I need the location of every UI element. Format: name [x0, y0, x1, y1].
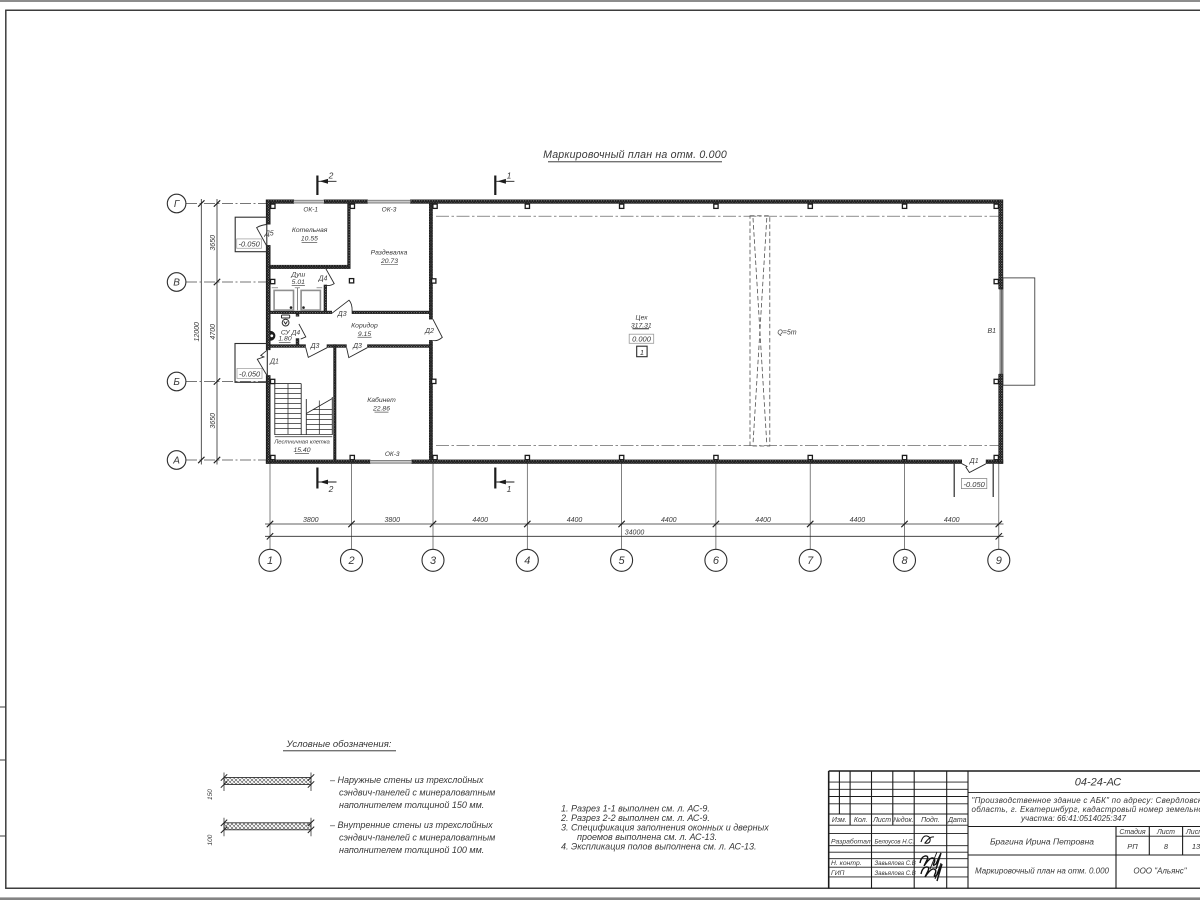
svg-text:4: 4 — [524, 555, 530, 567]
svg-text:Дата: Дата — [947, 817, 967, 824]
svg-text:Подп.: Подп. — [921, 816, 940, 824]
svg-text:317.31: 317.31 — [631, 322, 652, 329]
svg-text:3800: 3800 — [385, 517, 401, 524]
svg-text:-0.050: -0.050 — [239, 240, 261, 249]
svg-text:12000: 12000 — [194, 322, 201, 342]
svg-text:4400: 4400 — [567, 517, 583, 524]
svg-text:4400: 4400 — [472, 517, 488, 524]
svg-text:4400: 4400 — [944, 517, 960, 524]
svg-text:Кабинет: Кабинет — [367, 396, 396, 404]
svg-text:область, г. Екатеринбург, када: область, г. Екатеринбург, кадастровый но… — [972, 805, 1200, 814]
svg-text:10.55: 10.55 — [301, 235, 318, 242]
svg-text:4400: 4400 — [661, 517, 677, 524]
svg-text:5.01: 5.01 — [292, 279, 305, 286]
svg-text:Д3: Д3 — [337, 311, 347, 318]
svg-text:100: 100 — [207, 834, 214, 845]
svg-text:А: А — [172, 456, 180, 467]
svg-text:участка: 66:41:0514025:347: участка: 66:41:0514025:347 — [1020, 814, 1126, 823]
svg-text:4. Экспликация полов выполнена: 4. Экспликация полов выполнена см. л. АС… — [561, 841, 757, 851]
svg-text:РП: РП — [1127, 842, 1138, 851]
svg-text:Лист: Лист — [872, 817, 891, 824]
svg-text:9: 9 — [996, 555, 1002, 567]
svg-text:34000: 34000 — [625, 529, 645, 536]
svg-text:Условные обозначения:: Условные обозначения: — [286, 739, 392, 750]
svg-text:№док.: №док. — [893, 816, 914, 824]
svg-text:Д2: Д2 — [424, 328, 434, 335]
svg-text:Изм.: Изм. — [832, 817, 847, 824]
svg-text:– Внутренние стены из трехслой: – Внутренние стены из трехслойных — [329, 820, 493, 830]
svg-text:– Наружные стены из трехслойны: – Наружные стены из трехслойных — [329, 775, 484, 785]
svg-text:Листов: Листов — [1185, 829, 1200, 836]
svg-text:Завьялова С.В: Завьялова С.В — [875, 861, 916, 867]
svg-text:Завьялова С.В: Завьялова С.В — [875, 871, 916, 877]
svg-text:4400: 4400 — [850, 517, 866, 524]
svg-text:Маркировочный план на отм. 0.0: Маркировочный план на отм. 0.000 — [543, 149, 727, 161]
svg-text:проемов выполнена см. л. АС-13: проемов выполнена см. л. АС-13. — [577, 832, 717, 842]
svg-text:Б: Б — [173, 377, 180, 388]
svg-text:Лестничная клетка: Лестничная клетка — [273, 440, 330, 446]
svg-text:2. Разрез 2-2 выполнен см. л.: 2. Разрез 2-2 выполнен см. л. АС-9. — [560, 813, 710, 823]
svg-text:ОК-3: ОК-3 — [385, 451, 400, 458]
svg-text:Д1: Д1 — [969, 458, 979, 465]
svg-text:Д3: Д3 — [352, 343, 362, 350]
svg-text:5: 5 — [619, 555, 626, 567]
svg-text:8: 8 — [901, 555, 908, 567]
svg-text:3650: 3650 — [210, 413, 217, 429]
svg-text:ОК-1: ОК-1 — [303, 206, 318, 213]
svg-text:Стадия: Стадия — [1119, 828, 1145, 836]
svg-text:сэндвич-панелей с минераловатн: сэндвич-панелей с минераловатным — [339, 788, 495, 798]
svg-text:-0.050: -0.050 — [239, 370, 261, 379]
svg-text:150: 150 — [207, 789, 214, 800]
svg-text:ООО "Альянс": ООО "Альянс" — [1133, 867, 1187, 876]
svg-text:ОК-3: ОК-3 — [382, 206, 397, 213]
svg-text:4400: 4400 — [755, 517, 771, 524]
svg-text:1.80: 1.80 — [278, 336, 291, 343]
svg-text:6: 6 — [713, 555, 720, 567]
svg-text:Цех: Цех — [636, 315, 649, 322]
svg-text:1. Разрез 1-1 выполнен см. л.: 1. Разрез 1-1 выполнен см. л. АС-9. — [561, 803, 710, 813]
svg-text:Н. контр.: Н. контр. — [831, 860, 862, 867]
svg-text:Лист: Лист — [1156, 829, 1175, 836]
svg-text:22.86: 22.86 — [372, 406, 390, 413]
svg-text:20.73: 20.73 — [380, 258, 398, 265]
svg-text:наполнителем толщиной 150 мм.: наполнителем толщиной 150 мм. — [339, 800, 484, 810]
svg-text:2: 2 — [347, 555, 354, 567]
svg-text:Котельная: Котельная — [292, 227, 328, 234]
svg-text:Коридор: Коридор — [351, 321, 378, 329]
svg-text:0.000: 0.000 — [632, 335, 652, 344]
svg-text:Q=5m: Q=5m — [777, 329, 796, 336]
svg-text:4700: 4700 — [210, 324, 217, 340]
svg-text:04-24-АС: 04-24-АС — [1075, 776, 1122, 788]
svg-text:Белоусов Н.С.: Белоусов Н.С. — [875, 839, 915, 845]
svg-text:ГИП: ГИП — [831, 870, 845, 877]
svg-text:Брагина Ирина Петровна: Брагина Ирина Петровна — [990, 837, 1094, 847]
svg-text:Д4: Д4 — [318, 275, 328, 282]
svg-text:сэндвич-панелей с минераловатн: сэндвич-панелей с минераловатным — [339, 833, 495, 843]
svg-text:В1: В1 — [987, 328, 996, 335]
svg-text:7: 7 — [807, 555, 814, 567]
svg-text:Душ: Душ — [290, 271, 305, 278]
svg-text:3. Спецификация заполнения око: 3. Спецификация заполнения оконных и две… — [561, 822, 769, 832]
svg-text:Разработал: Разработал — [831, 838, 871, 846]
svg-text:3650: 3650 — [210, 235, 217, 251]
svg-text:"Производственное здание с АБК: "Производственное здание с АБК" по адрес… — [972, 796, 1200, 805]
svg-text:1: 1 — [507, 170, 512, 180]
svg-text:Кол.: Кол. — [854, 817, 868, 824]
svg-text:1: 1 — [267, 555, 273, 567]
svg-text:2: 2 — [328, 484, 334, 494]
svg-text:3800: 3800 — [303, 517, 319, 524]
svg-text:15.40: 15.40 — [293, 447, 310, 454]
svg-text:Раздевалка: Раздевалка — [371, 249, 408, 257]
svg-text:9.15: 9.15 — [358, 331, 371, 338]
svg-text:наполнителем толщиной 100 мм.: наполнителем толщиной 100 мм. — [339, 845, 484, 855]
svg-text:Д1: Д1 — [269, 358, 279, 365]
svg-text:1: 1 — [507, 484, 512, 494]
svg-text:В: В — [173, 278, 180, 289]
svg-text:3: 3 — [430, 555, 437, 567]
svg-text:2: 2 — [328, 170, 334, 180]
svg-text:-0.050: -0.050 — [964, 480, 986, 489]
svg-text:13: 13 — [1192, 842, 1200, 851]
svg-text:Д3: Д3 — [310, 343, 320, 350]
svg-text:Маркировочный план на отм. 0.0: Маркировочный план на отм. 0.000 — [975, 867, 1110, 876]
svg-text:1: 1 — [640, 348, 644, 357]
svg-text:Д5: Д5 — [264, 230, 274, 237]
